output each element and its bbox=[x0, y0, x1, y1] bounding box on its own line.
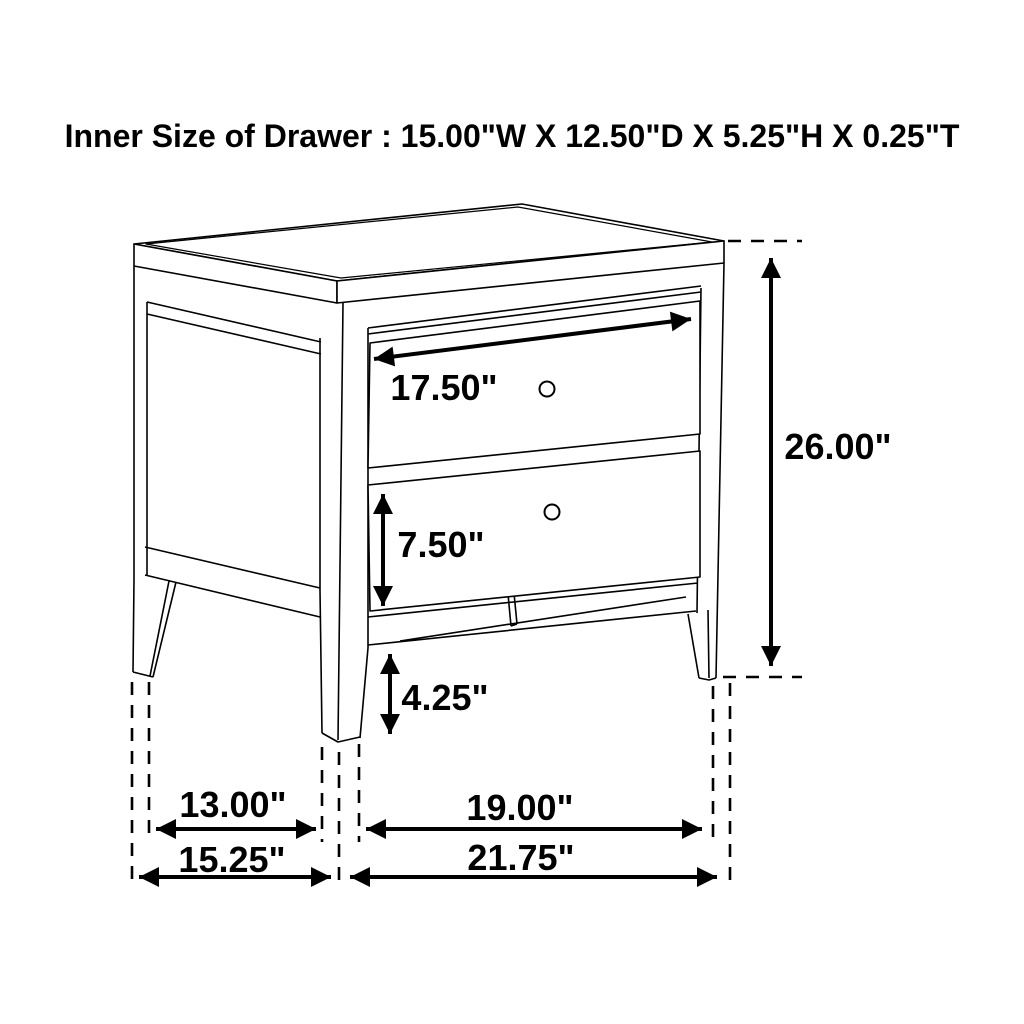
top-drawer-knob-icon bbox=[540, 382, 555, 397]
dimension-label-overall-width: 21.75" bbox=[467, 837, 574, 878]
nightstand-drawing bbox=[133, 204, 724, 742]
side-panel bbox=[133, 266, 322, 733]
diagram-page: Inner Size of Drawer : 15.00"W X 12.50"D… bbox=[0, 0, 1024, 1024]
nightstand-dimension-diagram: 17.50" 7.50" 4.25" 26.00" 13.00" 19.00" … bbox=[0, 0, 1024, 1024]
dimension-label-overall-depth: 15.25" bbox=[178, 839, 285, 880]
dimension-label-leg-height: 4.25" bbox=[401, 677, 488, 718]
dimension-label-top-drawer-width: 17.50" bbox=[390, 367, 497, 408]
side-panel-frame-lines bbox=[133, 266, 322, 733]
dimension-label-side-leg-spacing: 13.00" bbox=[179, 784, 286, 825]
dimension-label-bottom-drawer-height: 7.50" bbox=[397, 524, 484, 565]
bottom-drawer-knob-icon bbox=[545, 505, 560, 520]
dimension-label-overall-height: 26.00" bbox=[784, 426, 891, 467]
top-panel bbox=[134, 204, 724, 303]
dimension-label-front-leg-spacing: 19.00" bbox=[466, 787, 573, 828]
